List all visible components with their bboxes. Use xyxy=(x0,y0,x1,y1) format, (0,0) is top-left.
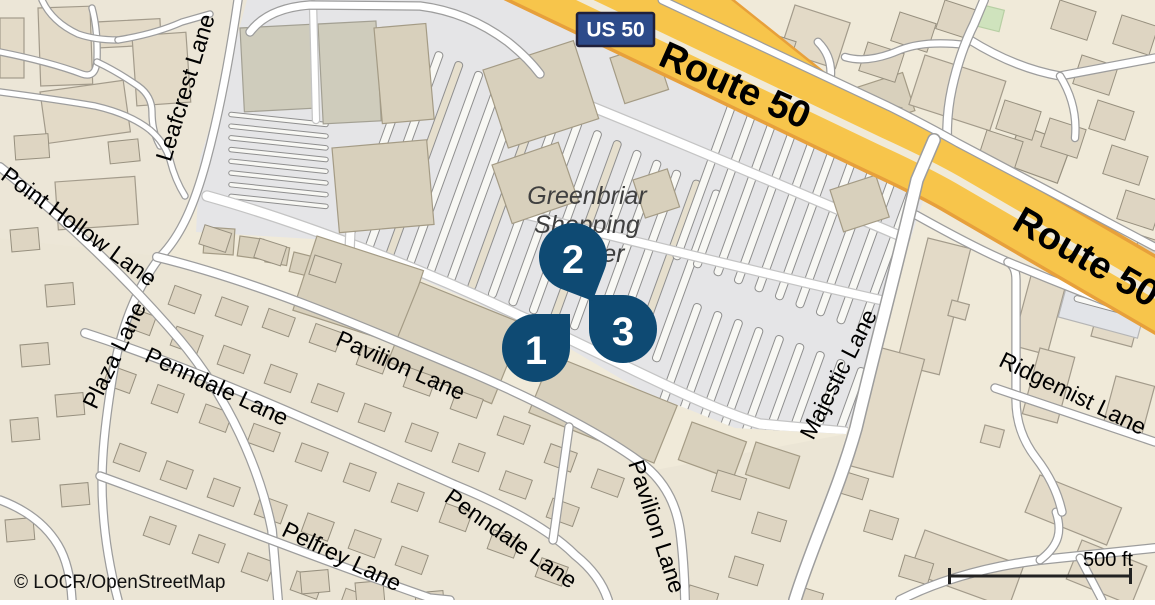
svg-text:Greenbriar: Greenbriar xyxy=(527,182,648,210)
svg-text:© LOCR/OpenStreetMap: © LOCR/OpenStreetMap xyxy=(14,572,225,593)
svg-text:3: 3 xyxy=(612,310,634,354)
svg-text:2: 2 xyxy=(562,238,584,282)
svg-text:1: 1 xyxy=(525,329,547,373)
svg-text:500 ft: 500 ft xyxy=(1083,549,1133,571)
svg-text:US 50: US 50 xyxy=(586,19,644,42)
